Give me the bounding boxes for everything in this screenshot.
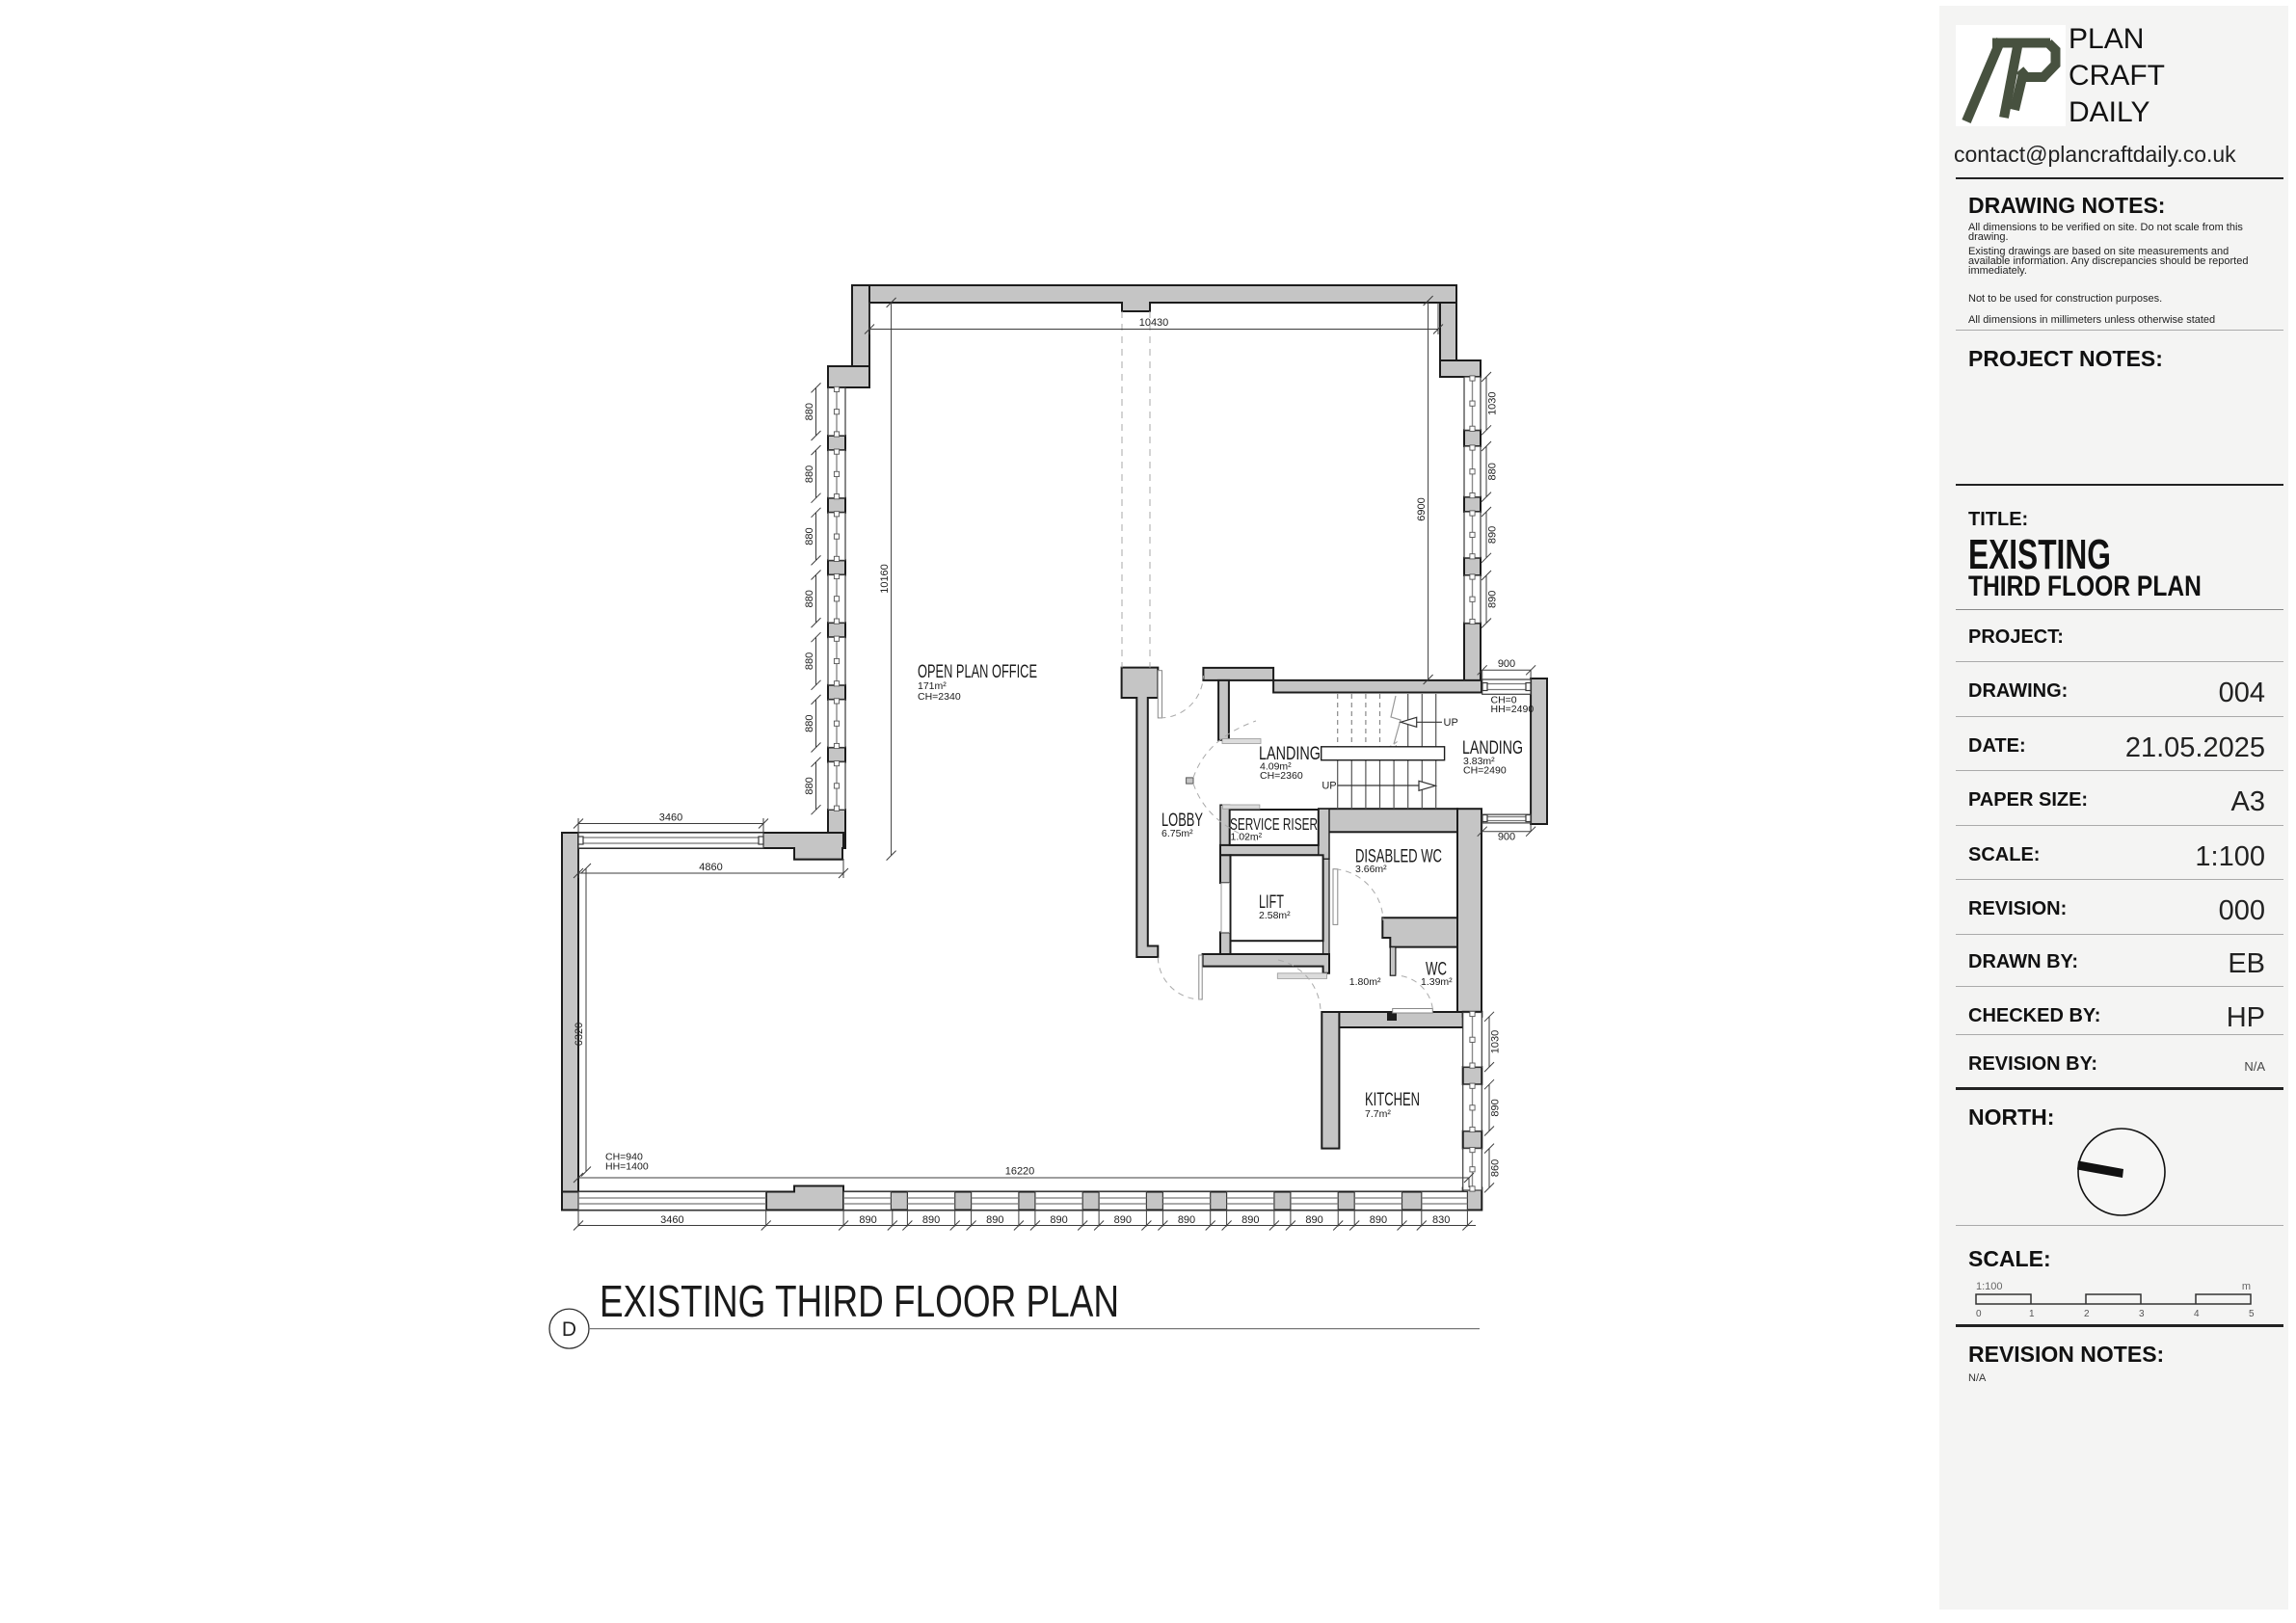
svg-text:CH=2360: CH=2360 (1260, 770, 1303, 782)
svg-text:5: 5 (2249, 1309, 2255, 1319)
svg-text:6900: 6900 (1416, 497, 1428, 520)
svg-text:890: 890 (986, 1214, 1003, 1226)
svg-text:OPEN PLAN OFFICE: OPEN PLAN OFFICE (918, 662, 1037, 682)
svg-text:890: 890 (859, 1214, 876, 1226)
svg-text:1:100: 1:100 (1976, 1281, 2003, 1292)
svg-text:7.7m²: 7.7m² (1365, 1108, 1391, 1120)
svg-text:860: 860 (1490, 1159, 1502, 1177)
svg-text:3: 3 (2139, 1309, 2145, 1319)
svg-text:3460: 3460 (659, 812, 682, 824)
svg-text:1.02m²: 1.02m² (1231, 832, 1263, 843)
svg-text:830: 830 (1432, 1214, 1450, 1226)
svg-text:6320: 6320 (574, 1023, 585, 1046)
svg-text:EXISTING THIRD FLOOR PLAN: EXISTING THIRD FLOOR PLAN (600, 1276, 1119, 1326)
svg-text:m: m (2242, 1281, 2251, 1292)
svg-text:890: 890 (1178, 1214, 1195, 1226)
svg-text:UP: UP (1444, 717, 1458, 729)
svg-text:880: 880 (804, 590, 815, 607)
svg-text:1030: 1030 (1487, 391, 1499, 414)
svg-text:880: 880 (804, 652, 815, 670)
svg-text:880: 880 (804, 403, 815, 420)
svg-text:890: 890 (1487, 526, 1499, 544)
svg-text:900: 900 (1498, 832, 1515, 843)
svg-text:890: 890 (1370, 1214, 1387, 1226)
svg-text:3.66m²: 3.66m² (1355, 864, 1387, 875)
svg-text:4860: 4860 (699, 862, 722, 873)
svg-text:890: 890 (922, 1214, 940, 1226)
svg-text:10160: 10160 (879, 564, 891, 594)
svg-text:890: 890 (1050, 1214, 1067, 1226)
svg-text:6.75m²: 6.75m² (1161, 828, 1193, 839)
svg-text:HH=1400: HH=1400 (605, 1161, 649, 1173)
svg-text:1030: 1030 (1490, 1030, 1502, 1053)
svg-text:890: 890 (1487, 591, 1499, 608)
svg-text:CH=2340: CH=2340 (918, 691, 961, 703)
svg-text:1: 1 (2029, 1309, 2035, 1319)
svg-text:890: 890 (1114, 1214, 1132, 1226)
svg-text:0: 0 (1976, 1309, 1982, 1319)
svg-text:2.58m²: 2.58m² (1259, 910, 1291, 921)
svg-text:890: 890 (1241, 1214, 1259, 1226)
svg-text:880: 880 (1487, 463, 1499, 480)
svg-text:D: D (562, 1318, 576, 1341)
svg-text:1.80m²: 1.80m² (1349, 976, 1381, 988)
svg-text:900: 900 (1498, 658, 1515, 670)
svg-text:CH=2490: CH=2490 (1463, 765, 1507, 777)
svg-text:HH=2490: HH=2490 (1491, 704, 1535, 715)
svg-text:16220: 16220 (1005, 1166, 1035, 1178)
svg-text:10430: 10430 (1139, 317, 1169, 329)
svg-text:4: 4 (2194, 1309, 2200, 1319)
svg-text:880: 880 (804, 715, 815, 732)
svg-text:890: 890 (1490, 1099, 1502, 1116)
svg-text:890: 890 (1305, 1214, 1322, 1226)
svg-text:880: 880 (804, 527, 815, 545)
svg-text:1.39m²: 1.39m² (1421, 976, 1453, 988)
svg-text:880: 880 (804, 777, 815, 794)
svg-text:2: 2 (2084, 1309, 2090, 1319)
svg-text:880: 880 (804, 466, 815, 483)
svg-text:KITCHEN: KITCHEN (1365, 1090, 1420, 1110)
svg-text:3460: 3460 (660, 1214, 683, 1226)
svg-text:UP: UP (1322, 781, 1336, 792)
